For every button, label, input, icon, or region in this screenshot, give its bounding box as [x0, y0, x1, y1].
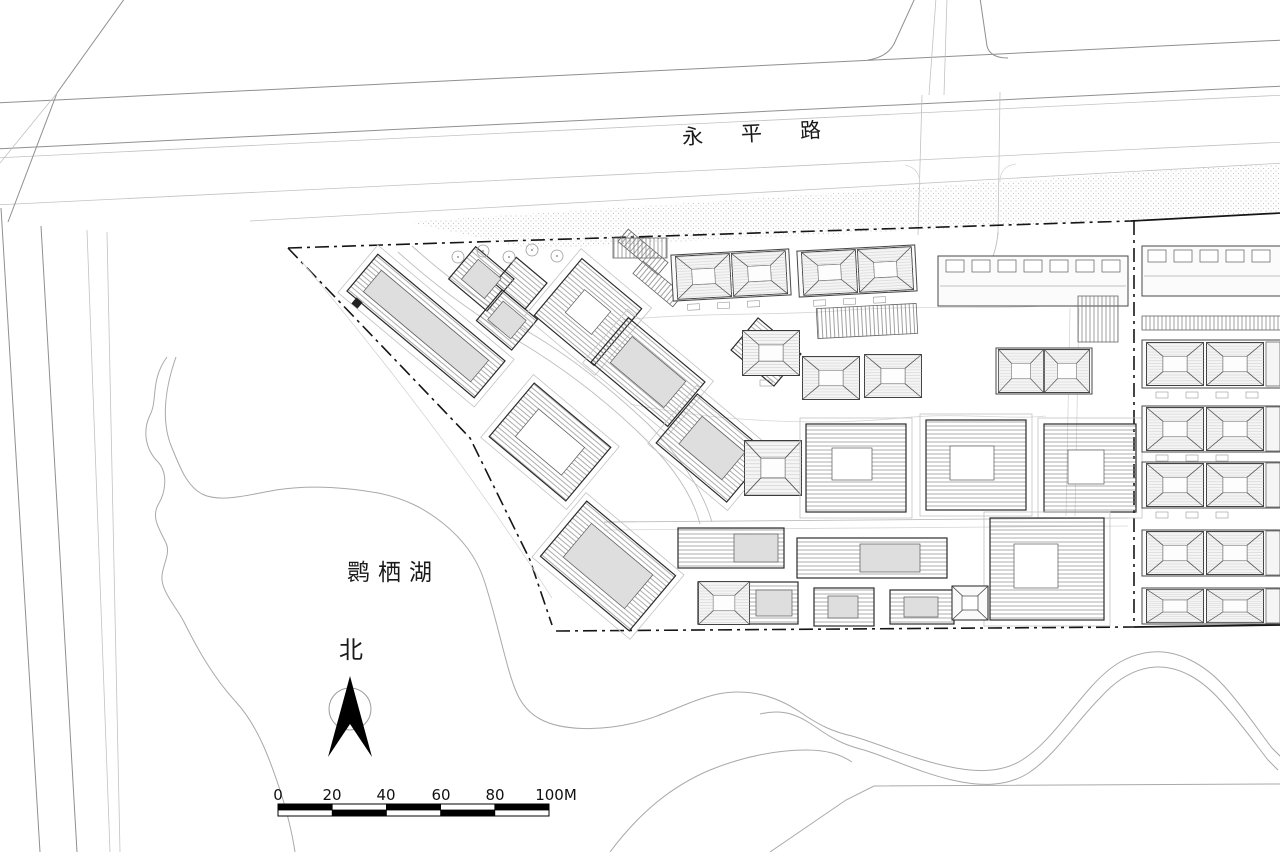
lake-name-label: 鹮栖湖 — [347, 560, 440, 586]
building-row-1 — [678, 528, 784, 568]
site-plan-canvas: 永平路 鹮栖湖 北 0 20 40 60 80 100M — [0, 0, 1280, 852]
building-row-5 — [890, 590, 954, 624]
north-arrow-icon: 北 — [328, 636, 372, 757]
building-row-3 — [698, 581, 798, 624]
townhouse-pair — [996, 348, 1092, 394]
road-name-label: 永平路 — [682, 116, 860, 149]
svg-text:0: 0 — [273, 786, 283, 804]
pavilion — [952, 586, 988, 620]
building-slab-lower — [532, 493, 684, 640]
building-u-block — [481, 375, 620, 510]
townhouse-single — [803, 356, 860, 399]
townhouse-row-outside — [1142, 530, 1280, 576]
flats-row-outside — [1142, 246, 1280, 296]
building-row-4 — [814, 588, 874, 626]
carport-outside — [1142, 316, 1280, 330]
svg-text:100M: 100M — [535, 786, 577, 804]
svg-text:20: 20 — [322, 786, 341, 804]
svg-text:80: 80 — [485, 786, 504, 804]
svg-text:60: 60 — [431, 786, 450, 804]
planting-strip — [408, 163, 1280, 249]
townhouse-single — [865, 354, 922, 397]
building-court-d — [984, 512, 1110, 626]
building-court-b — [920, 414, 1032, 516]
townhouse-row-outside — [1142, 588, 1280, 624]
townhouse-row-outside — [1142, 406, 1280, 461]
west-road — [0, 0, 125, 852]
building-court-a — [800, 418, 912, 518]
scale-bar: 0 20 40 60 80 100M — [273, 786, 577, 816]
townhouse-row — [797, 245, 918, 307]
svg-text:40: 40 — [376, 786, 395, 804]
north-label: 北 — [339, 636, 363, 664]
building-hip-square — [745, 441, 802, 496]
townhouse-row-outside — [1142, 340, 1280, 398]
building-row-2 — [797, 538, 947, 578]
scale-bar-segments — [278, 804, 549, 816]
building-court-c — [1038, 418, 1142, 518]
townhouse-row-outside — [1142, 462, 1280, 518]
townhouse-row — [671, 249, 792, 311]
